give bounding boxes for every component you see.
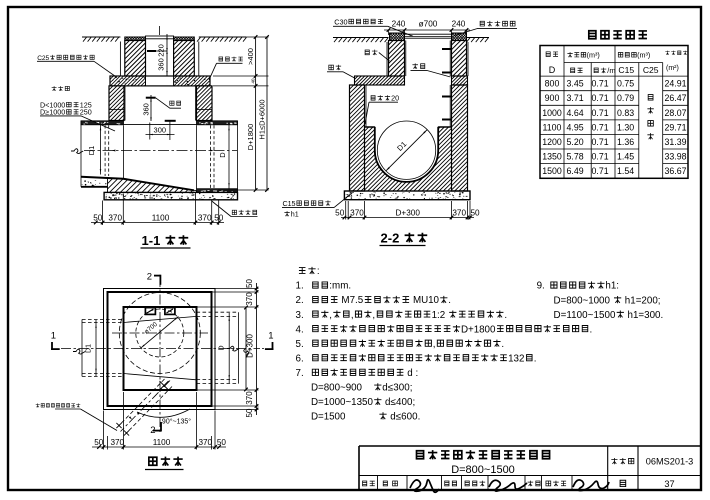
svg-text:D=1000~1350: D=1000~1350 xyxy=(311,397,373,408)
svg-text:h1=300.: h1=300. xyxy=(628,310,664,321)
svg-text:C25: C25 xyxy=(643,65,659,75)
svg-text:d: d xyxy=(407,368,412,379)
svg-text:D=1500: D=1500 xyxy=(311,412,346,423)
svg-text:40: 40 xyxy=(250,78,255,84)
svg-text:370: 370 xyxy=(198,213,212,222)
svg-text:90°~135°: 90°~135° xyxy=(162,418,191,426)
svg-text:d≤300;: d≤300; xyxy=(382,383,412,394)
svg-text:M7.5: M7.5 xyxy=(341,295,363,306)
svg-text:d≤400;: d≤400; xyxy=(385,397,415,408)
svg-text:ø700: ø700 xyxy=(419,20,438,29)
svg-text:0.83: 0.83 xyxy=(617,108,634,118)
svg-text:,: , xyxy=(351,310,354,321)
svg-text:1500: 1500 xyxy=(542,166,562,176)
svg-text:D+1800: D+1800 xyxy=(461,324,496,335)
svg-text:D=800~1500: D=800~1500 xyxy=(451,464,515,476)
svg-text:C15: C15 xyxy=(283,199,296,208)
svg-text:3.71: 3.71 xyxy=(567,93,584,103)
svg-text:1.45: 1.45 xyxy=(617,152,634,162)
svg-text:9.: 9. xyxy=(537,281,545,292)
svg-text:1100: 1100 xyxy=(153,438,171,447)
svg-text:26.47: 26.47 xyxy=(665,93,687,103)
svg-text:0.71: 0.71 xyxy=(592,166,609,176)
svg-text:3.45: 3.45 xyxy=(567,79,584,89)
svg-text:3.: 3. xyxy=(296,310,304,321)
svg-text:5.: 5. xyxy=(296,339,304,350)
svg-text:36.67: 36.67 xyxy=(665,166,687,176)
svg-text:h1: h1 xyxy=(291,210,299,219)
svg-text:d≤600.: d≤600. xyxy=(390,412,420,423)
svg-text:800: 800 xyxy=(545,79,560,89)
svg-text:50: 50 xyxy=(93,213,103,222)
svg-text:D+1800: D+1800 xyxy=(246,124,255,150)
svg-text:370: 370 xyxy=(245,391,254,405)
svg-text:360: 360 xyxy=(141,103,150,116)
svg-text:/m: /m xyxy=(607,66,615,75)
svg-text:1.54: 1.54 xyxy=(617,166,634,176)
svg-text:D+300: D+300 xyxy=(396,209,421,218)
svg-text:(m³): (m³) xyxy=(587,51,600,60)
svg-text:2-2: 2-2 xyxy=(381,231,400,246)
svg-text:2: 2 xyxy=(147,272,152,283)
svg-text:50: 50 xyxy=(335,209,345,218)
svg-text:250: 250 xyxy=(80,108,92,117)
svg-text:50: 50 xyxy=(245,408,254,417)
svg-text:220: 220 xyxy=(157,44,166,57)
svg-text:0.71: 0.71 xyxy=(592,137,609,147)
svg-text:0.71: 0.71 xyxy=(592,79,609,89)
svg-text:4.: 4. xyxy=(296,324,304,335)
svg-text:0.79: 0.79 xyxy=(617,93,634,103)
svg-text:1100: 1100 xyxy=(152,213,170,222)
svg-text:5.78: 5.78 xyxy=(567,152,584,162)
svg-text:D: D xyxy=(549,65,556,75)
svg-text:50: 50 xyxy=(470,209,480,218)
svg-text:,: , xyxy=(372,310,375,321)
svg-text:370: 370 xyxy=(350,209,364,218)
svg-text:D=800~900: D=800~900 xyxy=(311,383,363,394)
svg-text:29.71: 29.71 xyxy=(665,122,687,132)
svg-text:H1≤D+6000: H1≤D+6000 xyxy=(258,99,267,139)
svg-text:900: 900 xyxy=(545,93,560,103)
svg-text:,: , xyxy=(433,339,436,350)
svg-text:0.75: 0.75 xyxy=(617,79,634,89)
svg-text:50: 50 xyxy=(94,438,104,447)
svg-text:6.: 6. xyxy=(296,354,304,365)
svg-text:31.39: 31.39 xyxy=(665,137,687,147)
svg-text:360: 360 xyxy=(157,58,166,71)
svg-text:D+300: D+300 xyxy=(245,334,254,358)
svg-text:MU10: MU10 xyxy=(413,295,439,306)
svg-text:D1: D1 xyxy=(86,344,93,353)
svg-text:D=800~1000: D=800~1000 xyxy=(554,295,611,306)
svg-text:D1: D1 xyxy=(87,146,96,156)
svg-text:06MS201-3: 06MS201-3 xyxy=(646,456,694,466)
svg-text:4.64: 4.64 xyxy=(567,108,584,118)
svg-text:50: 50 xyxy=(245,279,254,288)
svg-text:37: 37 xyxy=(664,479,674,489)
svg-text:h1=200;: h1=200; xyxy=(625,295,661,306)
svg-text:33.98: 33.98 xyxy=(665,152,687,162)
svg-text:.: . xyxy=(448,295,451,306)
svg-text:240: 240 xyxy=(392,20,406,29)
svg-text:1000: 1000 xyxy=(542,108,562,118)
svg-text:1-1: 1-1 xyxy=(142,233,161,248)
svg-text:370: 370 xyxy=(245,292,254,306)
svg-text:.: . xyxy=(534,354,537,365)
svg-text:28.07: 28.07 xyxy=(665,108,687,118)
svg-text:D: D xyxy=(218,152,227,158)
svg-text:D≥1000: D≥1000 xyxy=(40,108,65,117)
svg-text:370: 370 xyxy=(198,438,212,447)
svg-text:1100: 1100 xyxy=(543,122,562,132)
svg-text:50: 50 xyxy=(217,438,227,447)
svg-text:240: 240 xyxy=(452,20,466,29)
svg-text:D=1100~1500: D=1100~1500 xyxy=(554,310,616,321)
svg-text:.: . xyxy=(501,339,504,350)
svg-text:24.91: 24.91 xyxy=(665,79,687,89)
svg-text:50: 50 xyxy=(214,213,224,222)
svg-text:C15: C15 xyxy=(618,65,634,75)
svg-text:(m³): (m³) xyxy=(637,51,650,60)
svg-text:>400: >400 xyxy=(246,48,255,65)
svg-text:(m²): (m²) xyxy=(666,65,679,72)
svg-text:132: 132 xyxy=(508,354,524,365)
svg-text:370: 370 xyxy=(108,213,122,222)
svg-text:D: D xyxy=(219,345,226,350)
svg-text:1.36: 1.36 xyxy=(617,137,634,147)
svg-text:1: 1 xyxy=(268,331,273,342)
svg-text:4.95: 4.95 xyxy=(567,122,584,132)
svg-text:0.71: 0.71 xyxy=(592,108,609,118)
svg-text::mm.: :mm. xyxy=(329,281,351,292)
svg-text:20: 20 xyxy=(391,94,399,103)
svg-text:h1:: h1: xyxy=(605,281,619,292)
svg-text:0.71: 0.71 xyxy=(592,93,609,103)
svg-text:1350: 1350 xyxy=(542,152,562,162)
svg-text:1.: 1. xyxy=(296,281,304,292)
svg-text:300: 300 xyxy=(154,125,167,134)
svg-text:7.: 7. xyxy=(296,368,304,379)
svg-text:6.49: 6.49 xyxy=(567,166,584,176)
svg-text:370: 370 xyxy=(452,209,466,218)
svg-text:0.71: 0.71 xyxy=(592,152,609,162)
svg-text:.: . xyxy=(504,310,507,321)
svg-text::: : xyxy=(317,266,320,277)
svg-text:C25: C25 xyxy=(37,55,49,62)
svg-text:1200: 1200 xyxy=(542,137,562,147)
svg-text:370: 370 xyxy=(110,438,124,447)
svg-text::: : xyxy=(416,368,419,379)
svg-text:5.20: 5.20 xyxy=(567,137,584,147)
svg-text:1: 1 xyxy=(51,331,56,342)
svg-text:,: , xyxy=(329,310,332,321)
svg-text:1:2: 1:2 xyxy=(432,310,446,321)
svg-text:C30: C30 xyxy=(334,17,347,26)
svg-text:1.30: 1.30 xyxy=(617,122,634,132)
svg-text:.: . xyxy=(590,324,593,335)
svg-text:2.: 2. xyxy=(296,295,304,306)
svg-text:0.71: 0.71 xyxy=(592,122,609,132)
